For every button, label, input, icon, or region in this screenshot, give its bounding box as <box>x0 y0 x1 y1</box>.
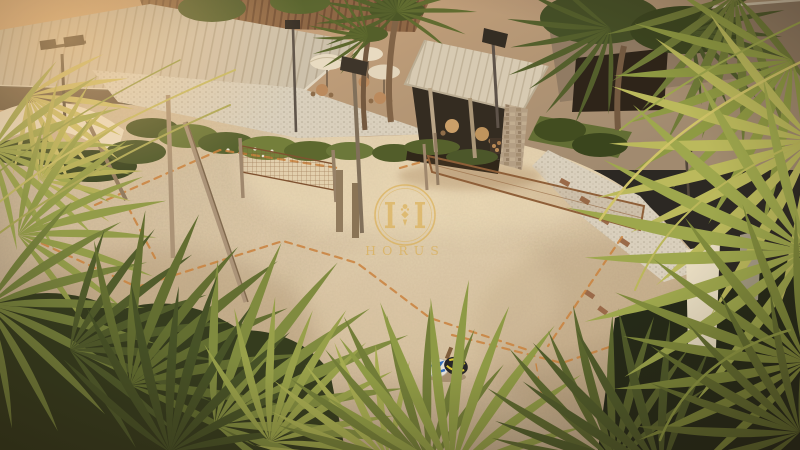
render-image: HORUS <box>0 0 800 450</box>
warm-tint <box>0 0 800 450</box>
scene-canvas: HORUS <box>0 0 800 450</box>
